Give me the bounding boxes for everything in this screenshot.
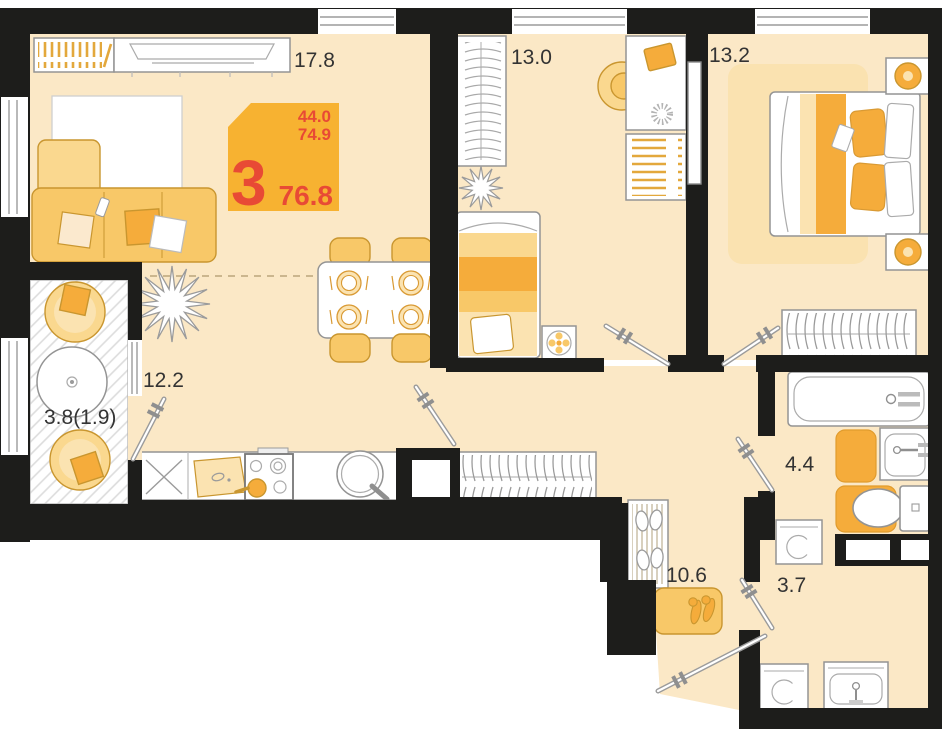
balcony-area: [30, 280, 128, 504]
laundry-sink: [824, 662, 888, 710]
room-label-bedroom1: 13.0: [511, 46, 552, 69]
balcony-chair: [45, 282, 105, 342]
bookshelf: [34, 38, 114, 72]
tv: [688, 62, 701, 184]
window: [128, 340, 142, 396]
double-bed: [770, 92, 920, 236]
badge-area-line1: 44.0: [298, 107, 331, 126]
bath-mat: [836, 430, 876, 482]
balcony-chair: [50, 430, 110, 490]
plant: [134, 266, 210, 342]
floor-plan-page: 17.8 13.0 13.2 12.2 3.8(1.9) 4.4 3.7 10.…: [0, 0, 942, 729]
nightstand-fan: [542, 326, 576, 360]
window: [318, 9, 396, 34]
wardrobe: [782, 310, 916, 358]
shoe-rack: [628, 500, 668, 588]
window: [755, 9, 870, 34]
washing-machine: [776, 520, 822, 564]
room-label-kitchen: 12.2: [143, 369, 184, 392]
stove: [236, 448, 293, 500]
window: [512, 9, 627, 34]
window: [1, 97, 28, 217]
wall-mounted-layer: [688, 62, 701, 184]
floor-plan: 17.8 13.0 13.2 12.2 3.8(1.9) 4.4 3.7 10.…: [0, 0, 942, 729]
washbasin: [880, 428, 930, 480]
nightstand: [886, 58, 930, 94]
badge-area-line2: 74.9: [298, 125, 331, 144]
room-label-bedroom2: 13.2: [709, 44, 750, 67]
info-badge: 44.0 74.9 3 76.8: [228, 103, 339, 219]
room-label-living: 17.8: [294, 49, 335, 72]
bathtub: [788, 372, 930, 426]
room-label-bathroom: 4.4: [785, 453, 815, 476]
room-label-hallway: 10.6: [666, 564, 707, 587]
window: [1, 338, 28, 455]
nightstand: [886, 234, 930, 270]
toilet: [853, 486, 930, 531]
entry-rug: [654, 588, 722, 634]
room-label-balcony: 3.8(1.9): [44, 406, 116, 429]
dining-table: [318, 262, 440, 338]
badge-room-count: 3: [231, 147, 267, 219]
room-label-laundry: 3.7: [777, 574, 806, 597]
bookcase: [626, 134, 686, 200]
tv-console: [114, 38, 290, 77]
washing-machine: [760, 664, 808, 710]
kitchen-counter: [138, 448, 400, 500]
wardrobe: [456, 36, 506, 166]
single-bed: [456, 212, 540, 358]
hall-wardrobe: [456, 452, 596, 502]
badge-area-total: 76.8: [279, 180, 334, 211]
